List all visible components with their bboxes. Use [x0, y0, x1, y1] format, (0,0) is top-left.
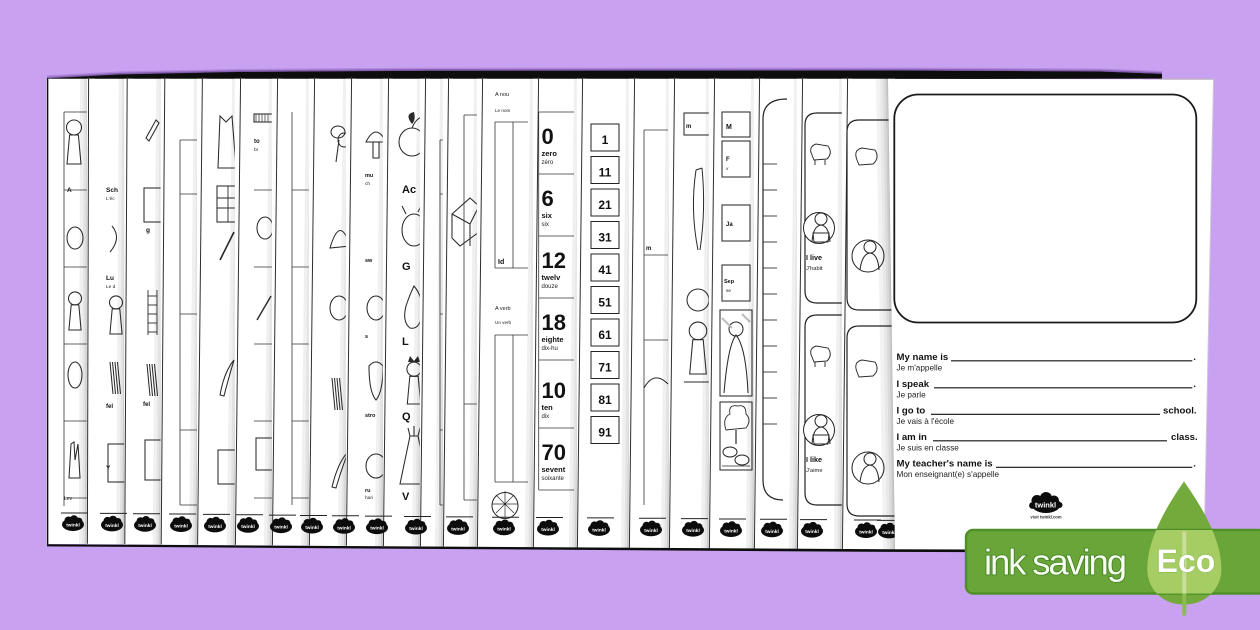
svg-text:twinkl: twinkl: [370, 526, 384, 532]
svg-text:Id: Id: [498, 259, 504, 266]
svg-text:stro: stro: [365, 413, 376, 419]
svg-text:1: 1: [602, 133, 609, 147]
svg-text:twinkl: twinkl: [105, 523, 119, 529]
svg-text:twelv: twelv: [542, 273, 562, 282]
svg-text:Sch: Sch: [106, 187, 118, 194]
svg-text:I live: I live: [806, 253, 822, 262]
svg-text:Sep: Sep: [724, 279, 735, 285]
svg-text:zéro: zéro: [542, 160, 554, 166]
svg-text:mu: mu: [365, 173, 373, 179]
svg-text:J'aime: J'aime: [806, 468, 823, 474]
svg-text:Eco: Eco: [1157, 543, 1216, 579]
svg-text:dix: dix: [542, 414, 550, 420]
svg-text:m: m: [686, 124, 691, 130]
svg-text:J'habit: J'habit: [806, 266, 823, 272]
svg-text:Je vais à l'école: Je vais à l'école: [897, 417, 955, 426]
svg-text:twinkl: twinkl: [1035, 501, 1056, 510]
svg-text:41: 41: [598, 263, 612, 277]
svg-text:se: se: [726, 289, 731, 294]
svg-text:sw: sw: [365, 258, 373, 264]
svg-text:I am in: I am in: [897, 432, 928, 443]
svg-text:Ja: Ja: [726, 222, 733, 228]
svg-text:twinkl: twinkl: [174, 524, 188, 530]
svg-text:Un verb: Un verb: [495, 320, 512, 325]
svg-text:.: .: [1193, 379, 1196, 390]
svg-text:ru: ru: [365, 488, 371, 494]
svg-text:twinkl: twinkl: [241, 524, 255, 530]
svg-text:Lev: Lev: [64, 496, 73, 502]
svg-text:twinkl: twinkl: [541, 527, 555, 533]
svg-text:br: br: [254, 147, 259, 153]
svg-text:10: 10: [542, 378, 566, 403]
svg-text:twinkl: twinkl: [305, 525, 319, 531]
svg-text:g: g: [146, 227, 150, 234]
svg-text:A nou: A nou: [495, 92, 509, 98]
svg-text:ten: ten: [542, 403, 554, 412]
svg-text:eighte: eighte: [542, 335, 564, 344]
svg-text:s: s: [365, 334, 368, 340]
svg-text:81: 81: [598, 393, 612, 407]
svg-text:Je parle: Je parle: [897, 391, 927, 400]
svg-text:Ac: Ac: [402, 184, 416, 196]
svg-text:V: V: [402, 491, 410, 503]
svg-text:six: six: [542, 211, 553, 220]
svg-text:twinkl: twinkl: [138, 523, 152, 529]
svg-text:twinkl: twinkl: [66, 523, 80, 529]
svg-text:I like: I like: [806, 455, 822, 464]
svg-text:G: G: [402, 261, 411, 273]
svg-text:51: 51: [598, 296, 612, 310]
svg-text:twinkl: twinkl: [337, 525, 351, 531]
svg-text:I go to: I go to: [897, 406, 926, 417]
svg-text:My teacher's name is: My teacher's name is: [897, 459, 993, 470]
svg-text:A: A: [67, 187, 72, 194]
svg-text:twinkl: twinkl: [451, 526, 465, 532]
svg-text:visit twinkl.com: visit twinkl.com: [1030, 515, 1061, 520]
svg-text:11: 11: [599, 166, 612, 180]
svg-text:91: 91: [598, 426, 612, 440]
svg-text:Je m'appelle: Je m'appelle: [897, 364, 943, 373]
svg-text:to: to: [254, 139, 260, 145]
svg-text:31: 31: [598, 231, 612, 245]
svg-text:ch: ch: [365, 181, 370, 187]
svg-text:61: 61: [598, 328, 612, 342]
svg-text:school.: school.: [1163, 406, 1197, 417]
svg-text:twinkl: twinkl: [686, 528, 700, 534]
svg-text:twinkl: twinkl: [765, 529, 779, 535]
svg-text:18: 18: [542, 310, 566, 335]
svg-text:.: .: [1193, 352, 1196, 363]
svg-text:Mon enseignant(e) s'appelle: Mon enseignant(e) s'appelle: [897, 470, 1000, 479]
svg-text:twinkl: twinkl: [859, 530, 873, 536]
svg-text:twinkl: twinkl: [409, 526, 423, 532]
svg-text:fel: fel: [143, 402, 150, 408]
svg-text:six: six: [542, 222, 549, 228]
svg-text:m: m: [646, 246, 651, 252]
svg-text:douze: douze: [542, 284, 559, 290]
svg-text:L: L: [402, 336, 409, 348]
svg-text:hari: hari: [365, 495, 373, 501]
svg-text:ink saving: ink saving: [984, 542, 1127, 583]
svg-text:Q: Q: [402, 411, 411, 423]
svg-text:I speak: I speak: [897, 379, 930, 390]
svg-text:L'éc: L'éc: [106, 196, 115, 202]
svg-text:My name is: My name is: [897, 352, 949, 363]
svg-text:twinkl: twinkl: [805, 529, 819, 535]
svg-text:twinkl: twinkl: [724, 529, 738, 535]
svg-text:M: M: [726, 124, 732, 131]
svg-text:Le nom: Le nom: [495, 108, 510, 113]
svg-text:A verb: A verb: [495, 306, 511, 312]
svg-text:twinkl: twinkl: [497, 527, 511, 533]
svg-text:twinkl: twinkl: [644, 528, 658, 534]
svg-text:Le d: Le d: [106, 284, 116, 290]
svg-text:F: F: [726, 157, 730, 163]
svg-text:twinkl: twinkl: [274, 525, 288, 531]
svg-text:zero: zero: [542, 149, 558, 158]
svg-text:Je suis en classe: Je suis en classe: [897, 444, 960, 453]
svg-text:70: 70: [542, 440, 566, 465]
svg-text:class.: class.: [1171, 432, 1198, 443]
svg-text:0: 0: [542, 124, 554, 149]
svg-text:71: 71: [598, 361, 612, 375]
svg-text:soixante: soixante: [542, 476, 565, 482]
svg-text:sevent: sevent: [542, 465, 566, 474]
svg-text:dix-hu: dix-hu: [542, 346, 558, 352]
svg-text:21: 21: [598, 198, 612, 212]
svg-text:.: .: [1193, 459, 1196, 470]
svg-text:twinkl: twinkl: [882, 530, 896, 536]
svg-text:fel: fel: [106, 404, 113, 410]
svg-text:twinkl: twinkl: [592, 527, 606, 533]
svg-text:12: 12: [542, 248, 566, 273]
svg-text:Lu: Lu: [106, 275, 114, 282]
svg-text:twinkl: twinkl: [208, 524, 222, 530]
svg-text:6: 6: [542, 186, 554, 211]
